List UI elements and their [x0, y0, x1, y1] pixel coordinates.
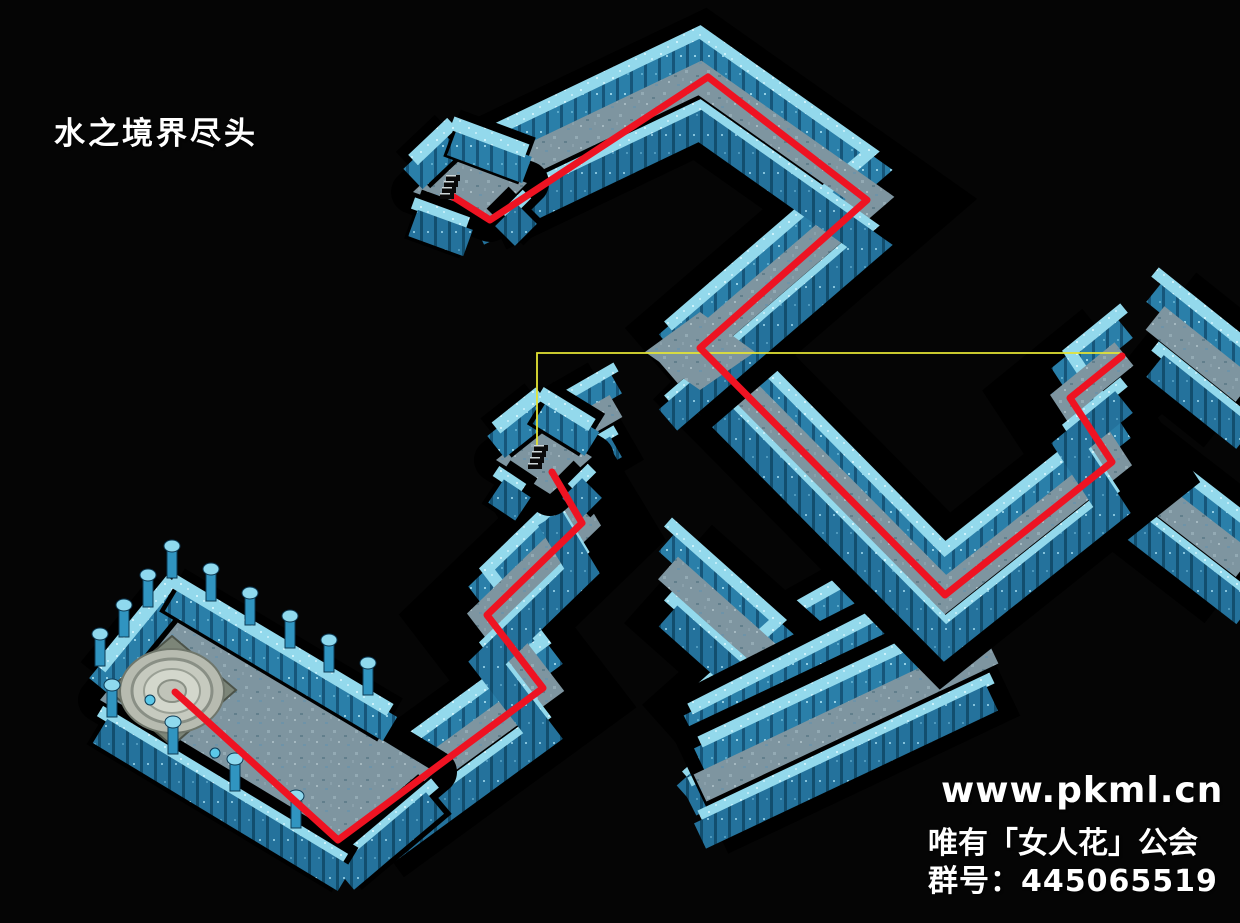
watermark-group-number: 群号：445065519 — [928, 856, 1218, 900]
room-start-room — [413, 123, 527, 243]
watermark-site-url: www.pkml.cn — [941, 770, 1223, 811]
map-stage: 水之境界尽头 www.pkml.cn 唯有「女人花」公会 群号：44506551… — [0, 0, 1240, 923]
map-title: 水之境界尽头 — [54, 108, 258, 153]
